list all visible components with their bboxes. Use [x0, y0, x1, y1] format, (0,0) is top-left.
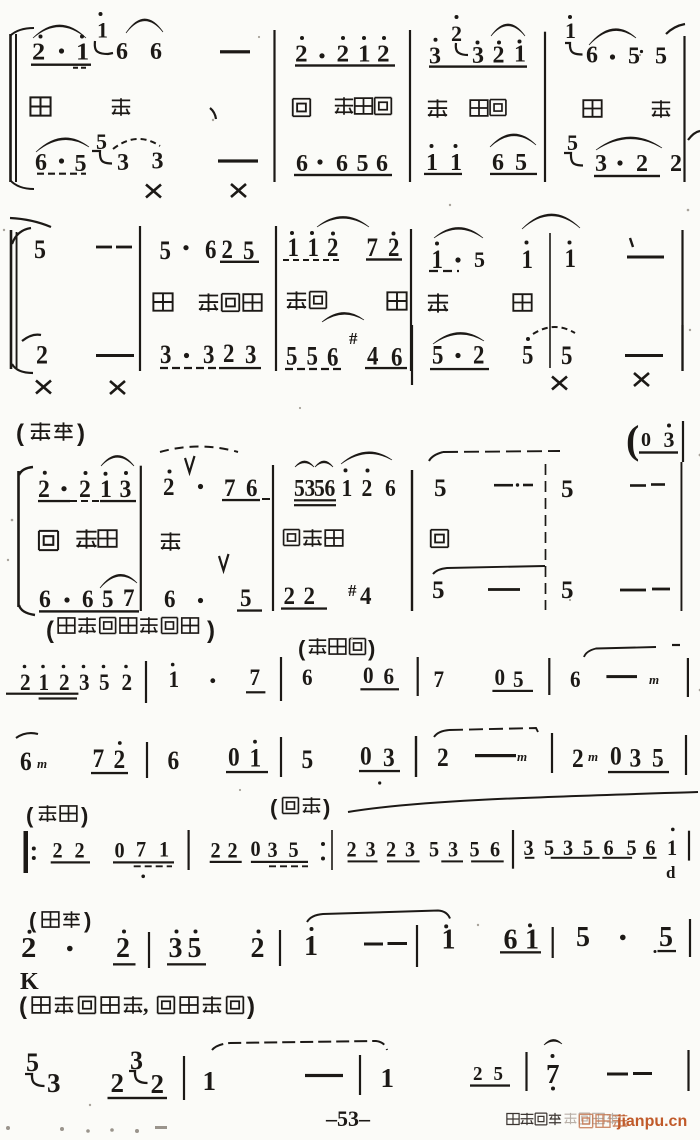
svg-text:5: 5 [160, 237, 171, 266]
svg-text:5: 5 [26, 1048, 39, 1077]
svg-text:): ) [247, 993, 255, 1020]
svg-text:3: 3 [366, 837, 376, 862]
svg-text:2: 2 [228, 838, 238, 863]
svg-text:3: 3 [120, 475, 132, 503]
svg-text:2: 2 [377, 41, 390, 67]
svg-text:1: 1 [426, 150, 438, 176]
svg-text:5: 5 [429, 837, 439, 862]
svg-text:6: 6 [150, 39, 162, 65]
svg-text:5: 5 [494, 1064, 504, 1086]
svg-text:5: 5 [286, 342, 297, 371]
svg-text:5: 5 [188, 933, 202, 964]
svg-text:6: 6 [376, 151, 388, 177]
svg-text:2: 2 [493, 43, 505, 69]
svg-text:2: 2 [163, 474, 175, 501]
svg-text:0: 0 [115, 838, 125, 863]
svg-text:5: 5 [99, 669, 110, 695]
svg-text:6: 6 [586, 43, 598, 69]
svg-text:d: d [666, 863, 676, 882]
svg-text:#: # [349, 329, 358, 348]
svg-text:–53–: –53– [325, 1106, 371, 1131]
svg-text:3: 3 [79, 669, 90, 695]
svg-text:1: 1 [308, 234, 319, 263]
svg-text:5: 5 [434, 475, 447, 502]
svg-text:1: 1 [565, 245, 576, 274]
svg-text:(: ( [26, 803, 34, 828]
svg-text:6: 6 [164, 586, 176, 613]
svg-text:2: 2 [284, 583, 296, 610]
svg-text:7: 7 [434, 666, 445, 692]
svg-text:(: ( [29, 908, 37, 933]
svg-text:1: 1 [203, 1066, 217, 1096]
svg-text:2: 2 [211, 838, 221, 863]
svg-text:2: 2 [151, 1069, 165, 1099]
svg-text:5: 5 [583, 835, 593, 860]
svg-text:1: 1 [667, 835, 677, 860]
svg-text:5: 5 [302, 746, 314, 774]
svg-text:2: 2 [362, 475, 373, 501]
svg-text:3: 3 [563, 835, 573, 860]
svg-text:3: 3 [117, 150, 129, 176]
svg-text:1: 1 [169, 666, 180, 692]
svg-text:1: 1 [450, 150, 462, 176]
svg-text:5: 5 [474, 247, 485, 272]
svg-text:2: 2 [304, 583, 316, 610]
svg-text:m: m [588, 749, 598, 764]
svg-text:4: 4 [367, 342, 378, 371]
svg-text:5: 5 [357, 151, 369, 177]
svg-text:1: 1 [304, 931, 318, 962]
svg-text:5: 5 [34, 236, 46, 264]
svg-text:2: 2 [473, 341, 484, 370]
svg-text:(: ( [626, 417, 639, 462]
svg-text:2: 2 [20, 669, 31, 695]
svg-text:6: 6 [492, 150, 504, 176]
svg-text:5: 5 [289, 837, 299, 862]
svg-text:3: 3 [472, 43, 484, 69]
svg-text:): ) [77, 420, 85, 447]
svg-text:3: 3 [664, 427, 675, 452]
svg-text:1: 1 [522, 246, 533, 275]
svg-text:1: 1 [97, 18, 108, 43]
svg-text:6: 6 [325, 475, 336, 501]
svg-text:0: 0 [495, 664, 506, 690]
svg-text:7: 7 [123, 585, 135, 612]
svg-text:(: ( [46, 617, 54, 644]
svg-text:6: 6 [205, 236, 216, 265]
svg-text:5: 5 [102, 586, 114, 613]
svg-text:1: 1 [100, 475, 112, 503]
svg-text:2: 2 [222, 236, 233, 265]
svg-text:2: 2 [223, 340, 234, 369]
svg-text:5: 5 [314, 475, 325, 501]
svg-text:3: 3 [245, 341, 256, 370]
svg-text:7: 7 [546, 1059, 560, 1089]
svg-text:7: 7 [136, 837, 147, 862]
svg-text:0: 0 [251, 836, 261, 861]
svg-text:2: 2 [116, 933, 130, 964]
svg-text:5: 5 [576, 922, 590, 953]
svg-text:3: 3 [160, 341, 171, 370]
svg-text:0: 0 [610, 743, 622, 771]
svg-text:2: 2 [53, 838, 63, 863]
svg-text:2: 2 [347, 837, 357, 862]
svg-text:(: ( [19, 993, 27, 1020]
svg-text:5: 5 [627, 835, 637, 860]
svg-text:2: 2 [75, 838, 85, 863]
svg-text:6: 6 [35, 150, 47, 176]
svg-text:6: 6 [302, 664, 313, 690]
svg-text:3: 3 [448, 837, 458, 862]
svg-text:7: 7 [224, 475, 236, 502]
svg-text:1: 1 [250, 744, 262, 772]
svg-text:3: 3 [405, 837, 415, 862]
svg-text:5: 5 [307, 342, 318, 371]
svg-text:(: ( [16, 420, 24, 447]
svg-text:#: # [348, 581, 357, 600]
svg-text:2: 2 [79, 475, 91, 503]
svg-text:5: 5 [561, 476, 574, 503]
svg-text:6: 6 [604, 835, 614, 860]
svg-text:1: 1 [358, 41, 371, 67]
svg-text:6: 6 [39, 585, 51, 613]
svg-text:6: 6 [82, 586, 94, 613]
svg-text:1: 1 [525, 925, 539, 956]
svg-text:5: 5 [567, 130, 578, 155]
svg-text:7: 7 [93, 745, 105, 773]
svg-text:1: 1 [565, 18, 576, 43]
svg-text:2: 2 [437, 744, 449, 772]
svg-text:0: 0 [228, 743, 240, 771]
svg-text:2: 2 [670, 151, 682, 177]
svg-text:3: 3 [595, 151, 607, 177]
svg-text:3: 3 [383, 744, 395, 772]
svg-text:6: 6 [490, 837, 500, 862]
svg-text:1: 1 [381, 1063, 395, 1093]
svg-text:0: 0 [363, 662, 374, 688]
svg-text:1: 1 [159, 837, 169, 862]
svg-text:(: ( [298, 636, 306, 661]
svg-text:2: 2 [295, 41, 308, 67]
svg-text:): ) [84, 908, 91, 933]
svg-text:1: 1 [514, 41, 526, 67]
svg-text:3: 3 [524, 835, 534, 860]
svg-text:2: 2 [572, 745, 584, 773]
svg-text:6: 6 [646, 835, 656, 860]
svg-text:6: 6 [116, 39, 128, 65]
svg-text:5: 5 [522, 341, 533, 370]
svg-text:2: 2 [473, 1064, 482, 1086]
svg-text:5: 5 [659, 922, 673, 953]
svg-text:2: 2 [451, 21, 462, 46]
svg-text:5: 5 [561, 342, 572, 371]
svg-text:6: 6 [504, 925, 518, 956]
svg-text:5: 5 [432, 577, 445, 604]
svg-text:2: 2 [21, 933, 36, 963]
svg-text:5: 5 [240, 585, 252, 612]
svg-text:m: m [517, 749, 527, 764]
svg-text:K: K [20, 969, 39, 995]
svg-text:3: 3 [152, 149, 164, 175]
svg-text:1: 1 [39, 669, 50, 695]
svg-text:5: 5 [470, 837, 480, 862]
svg-text:2: 2 [636, 151, 648, 177]
svg-text:0: 0 [360, 742, 372, 770]
svg-text:,: , [143, 992, 149, 1017]
svg-text:): ) [368, 636, 375, 661]
svg-text:): ) [207, 617, 215, 644]
svg-text:5: 5 [513, 666, 524, 692]
svg-text:0: 0 [641, 429, 651, 451]
svg-text:2: 2 [36, 342, 48, 370]
svg-text:5: 5 [652, 744, 664, 772]
svg-text:3: 3 [169, 933, 183, 964]
svg-text:2: 2 [327, 234, 338, 263]
svg-text:6: 6 [570, 666, 581, 692]
svg-text:7: 7 [250, 664, 261, 690]
svg-text:1: 1 [342, 475, 353, 501]
svg-text:2: 2 [32, 40, 45, 66]
svg-text:): ) [81, 803, 88, 828]
svg-text:2: 2 [114, 746, 126, 774]
svg-text:1: 1 [76, 40, 89, 66]
svg-text:2: 2 [251, 933, 265, 964]
svg-text:2: 2 [59, 669, 70, 695]
svg-text:1: 1 [288, 234, 299, 263]
svg-text:6: 6 [384, 663, 395, 689]
svg-text:m: m [649, 672, 659, 687]
svg-text:2: 2 [111, 1068, 125, 1098]
svg-text:6: 6 [20, 748, 32, 776]
svg-text:5: 5 [432, 341, 443, 370]
svg-text:2: 2 [122, 669, 133, 695]
svg-text:3: 3 [203, 341, 214, 370]
svg-text:5: 5 [515, 150, 527, 176]
svg-text:2: 2 [386, 837, 396, 862]
svg-text:6: 6 [246, 475, 258, 502]
svg-text:5: 5 [628, 44, 640, 70]
svg-text:3: 3 [630, 744, 642, 772]
svg-text:2: 2 [38, 475, 50, 503]
svg-text:4: 4 [360, 583, 372, 610]
svg-text:6: 6 [385, 475, 396, 501]
svg-text:5: 5 [294, 475, 305, 501]
svg-text:3: 3 [47, 1068, 61, 1098]
svg-text:6: 6 [168, 747, 180, 775]
svg-text:5: 5 [655, 44, 667, 70]
svg-text:3: 3 [268, 837, 278, 862]
svg-text:2: 2 [388, 234, 399, 263]
svg-text:1: 1 [442, 925, 456, 956]
svg-text:m: m [37, 756, 47, 771]
svg-text:(: ( [270, 795, 278, 820]
svg-text:6: 6 [336, 151, 348, 177]
svg-text:): ) [323, 795, 330, 820]
svg-text:jianpu.cn: jianpu.cn [616, 1113, 687, 1130]
svg-text:2: 2 [337, 41, 350, 67]
svg-text:5: 5 [544, 835, 554, 860]
svg-text:6: 6 [296, 151, 308, 177]
svg-text:5: 5 [561, 577, 574, 604]
svg-text:6: 6 [327, 343, 338, 372]
svg-text:7: 7 [367, 234, 378, 263]
